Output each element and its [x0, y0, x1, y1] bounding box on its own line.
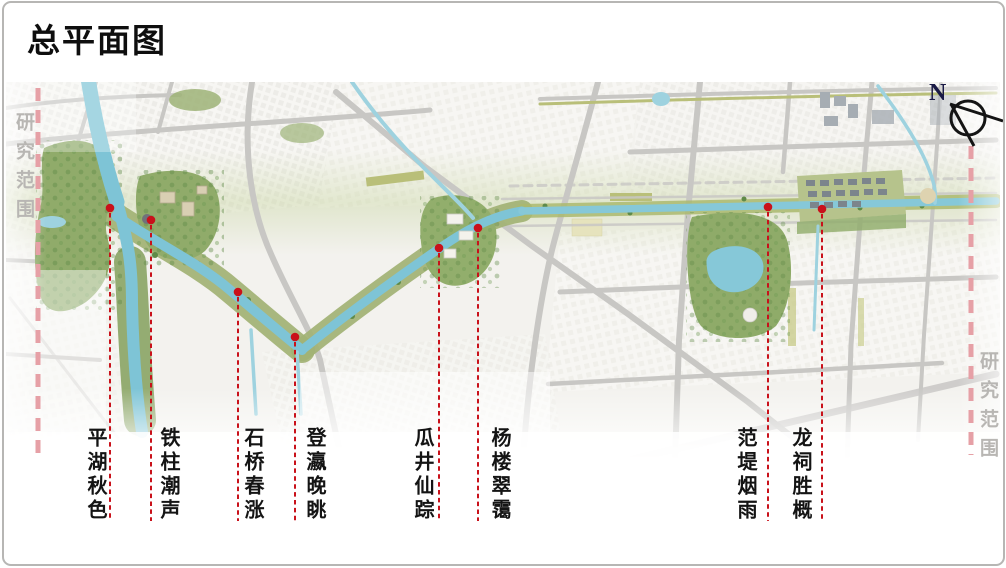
page-title: 总平面图	[27, 14, 167, 62]
north-label: N	[929, 80, 946, 107]
spot-marker-dot	[474, 224, 483, 233]
spot-marker-dot	[106, 204, 115, 213]
spot-marker-dot	[818, 205, 827, 214]
study-scope-label-left: 研究范围	[10, 112, 37, 228]
spot-name-label: 石桥春涨	[241, 427, 263, 523]
spot-marker-dot	[291, 333, 300, 342]
spot-name-label: 铁柱潮声	[157, 427, 179, 523]
spot-name-label: 瓜井仙踪	[411, 427, 433, 523]
spot-marker-dot	[435, 244, 444, 253]
spot-marker-dot	[764, 203, 773, 212]
spot-name-label: 杨楼翠霭	[488, 427, 510, 523]
spot-marker-dot	[234, 288, 243, 297]
spot-name-label: 登瀛晚眺	[303, 427, 325, 523]
spot-name-label: 范堤烟雨	[734, 427, 756, 523]
spot-name-label: 平湖秋色	[84, 427, 106, 523]
map-illustration	[6, 78, 1000, 462]
spot-name-label: 龙祠胜概	[789, 427, 811, 523]
plan-slide: 总平面图 N 研究范围 研究范围 平湖秋色铁柱潮声石桥春涨登瀛晚眺瓜井仙踪杨楼翠…	[0, 0, 1006, 568]
spot-marker-dot	[147, 216, 156, 225]
study-scope-label-right: 研究范围	[974, 351, 1001, 467]
